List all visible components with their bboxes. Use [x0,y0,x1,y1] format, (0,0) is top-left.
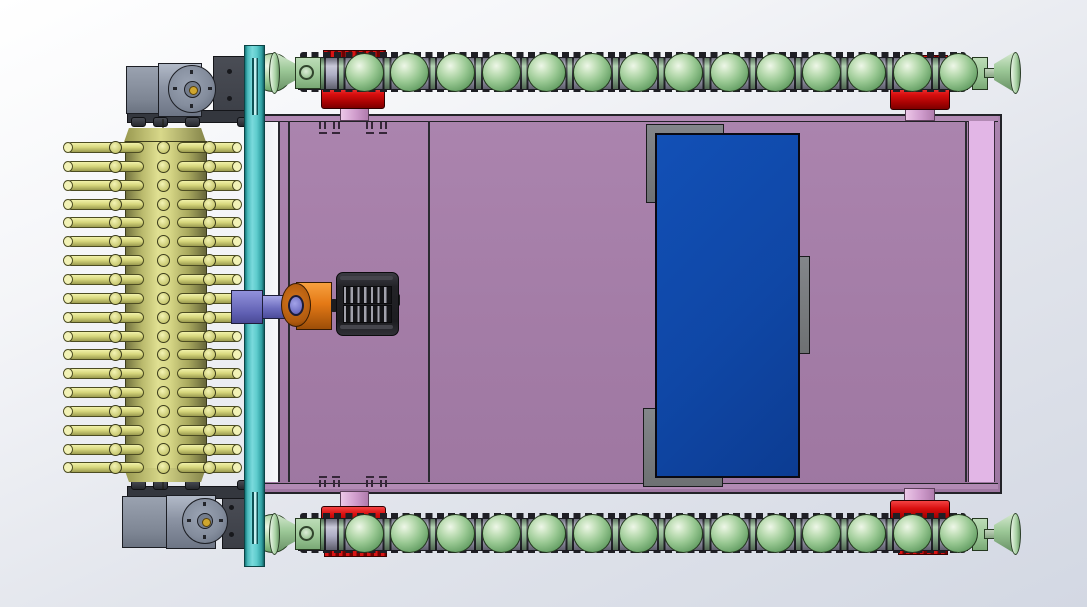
vent-tick [366,122,368,129]
brush-pin-cap-right [232,444,242,455]
brush-hub-dot [157,386,170,399]
track-ball [573,53,612,92]
vent-tick [324,480,326,487]
brush-hub-dot [157,461,170,474]
track-end-rim-bottom-left [269,513,280,555]
brush-pin-cap-left [63,331,73,342]
track-ball [436,514,475,553]
brush-pin-left [66,406,144,417]
brush-pin-cap-right [232,255,242,266]
equipment-panel-blue[interactable] [655,133,800,478]
vent-tick [333,122,335,129]
track-ball [664,53,703,92]
brush-hub-dot [157,160,170,173]
brush-pin-row [64,444,244,457]
brush-pin-row [64,255,244,268]
brush-pin-cap-right [232,180,242,191]
brush-motor-fin-row-1 [343,286,392,304]
vent-tick [366,480,368,487]
brush-pin-row [64,406,244,419]
vent-dash [332,476,340,479]
chassis-right-light-strip [968,121,995,482]
motor-face-notch [203,535,206,539]
brush-pin-joint [109,311,122,324]
brush-pin-left [66,255,144,266]
vent-dash [332,132,340,135]
track-ball [893,514,932,553]
brush-hub-dot [157,292,170,305]
brush-pin-joint [109,292,122,305]
vent-tick [380,122,382,129]
brush-pin-left [66,444,144,455]
brush-hub-dot [157,348,170,361]
brush-pin-left [66,387,144,398]
track-ball [847,53,886,92]
brush-pin-row [64,274,244,287]
brush-pin-cap-left [63,199,73,210]
track-ball [939,514,978,553]
track-ball [756,514,795,553]
brush-pin-left [66,312,144,323]
brush-pin-joint [203,273,216,286]
brush-pin-joint [203,292,216,305]
track-ball [436,53,475,92]
brush-motor-top-band [340,276,393,280]
vent-tick [371,480,373,487]
brush-pin-cap-right [232,199,242,210]
track-ball [527,514,566,553]
vent-dash [379,476,387,479]
vent-tick [371,122,373,129]
brush-pin-joint [109,179,122,192]
brush-pin-joint [203,254,216,267]
brush-pin-joint [203,424,216,437]
cad-viewport[interactable] [0,0,1087,607]
brush-pin-joint [203,160,216,173]
brush-pin-row [64,199,244,212]
coupling-bore [288,295,304,316]
brush-pin-cap-left [63,180,73,191]
brush-motor-bottom-band [340,325,393,329]
brush-pin-joint [203,330,216,343]
track-ball [527,53,566,92]
brush-pin-joint [109,424,122,437]
vent-dash [379,132,387,135]
brush-pin-left [66,142,144,153]
brush-pin-row [64,142,244,155]
brush-pin-left [66,462,144,473]
brush-pin-cap-right [232,142,242,153]
brush-pin-row [64,425,244,438]
brush-pin-joint [109,198,122,211]
track-ball [390,53,429,92]
track-ball [390,514,429,553]
brush-pin-cap-left [63,425,73,436]
bracket-hole [229,505,234,510]
track-ball [710,514,749,553]
brush-hub-dot [157,254,170,267]
chassis-divider-line-3 [965,121,967,482]
vent-tick [385,122,387,129]
brush-pin-row [64,387,244,400]
motor-face-notch [190,70,193,74]
track-ball [619,514,658,553]
chassis-divider-line-2 [428,121,430,482]
vent-tick [338,122,340,129]
mount-bolt [153,117,168,127]
brush-hub-dot [157,179,170,192]
brush-pin-cap-right [232,161,242,172]
brush-pin-cap-left [63,293,73,304]
track-ball [710,53,749,92]
brush-pin-cap-right [232,368,242,379]
brush-pin-row [64,312,244,325]
vent-dash [366,476,374,479]
brush-pin-cap-right [232,406,242,417]
vent-tick [319,480,321,487]
bracket-hole [227,96,232,101]
track-ball [756,53,795,92]
gearbox-bl [122,496,170,548]
brush-pin-joint [109,330,122,343]
brush-hub-dot [157,424,170,437]
motor-face-notch [219,519,223,522]
brush-pin-cap-right [232,425,242,436]
brush-pin-cap-left [63,142,73,153]
track-ball [802,53,841,92]
brush-hub-dot [157,141,170,154]
track-end-rim-top-left [269,52,280,94]
brush-pin-row [64,180,244,193]
track-ball [345,514,384,553]
track-ball [847,514,886,553]
brush-pin-row [64,217,244,230]
vent-dash [366,132,374,135]
mount-bolt [131,117,146,127]
vent-tick [385,480,387,487]
vent-tick [333,480,335,487]
brush-pin-cap-right [232,387,242,398]
brush-pin-row [64,331,244,344]
track-ball [664,514,703,553]
track-ball [345,53,384,92]
brush-pin-joint [203,405,216,418]
brush-hub-dot [157,311,170,324]
brush-pin-left [66,199,144,210]
brush-pin-joint [203,311,216,324]
brush-hub-dot [157,405,170,418]
bracket-hole [227,69,232,74]
brush-pin-row [64,368,244,381]
brush-pin-joint [203,141,216,154]
brush-hub-dot [157,330,170,343]
brush-hub-dot [157,367,170,380]
brush-pin-cap-right [232,274,242,285]
motor-face-notch [190,104,193,108]
brush-pin-cap-right [232,217,242,228]
brush-pin-joint [109,405,122,418]
brush-pin-cap-left [63,161,73,172]
brush-pin-left [66,274,144,285]
brush-motor-fin-row-2 [343,305,392,323]
brush-hub-dot [157,235,170,248]
brush-pin-row [64,293,244,306]
vent-tick [324,122,326,129]
track-ball [802,514,841,553]
brush-pin-joint [203,386,216,399]
brush-pin-cap-right [232,331,242,342]
brush-pin-left [66,425,144,436]
vent-tick [319,122,321,129]
brush-pin-cap-left [63,387,73,398]
brush-pin-joint [109,386,122,399]
brush-pin-joint [109,141,122,154]
brush-pin-cap-left [63,312,73,323]
brush-pin-cap-left [63,406,73,417]
brush-pin-joint [109,273,122,286]
bracket-hole [229,532,234,537]
brush-pin-left [66,368,144,379]
motor-hub-dot-tl [189,86,198,95]
brush-pin-left [66,349,144,360]
track-end-rim-top-right [1010,52,1021,94]
brush-pin-row [64,236,244,249]
brush-pin-joint [109,160,122,173]
track-ball [893,53,932,92]
mount-bolt [185,117,200,127]
brush-pin-cap-right [232,349,242,360]
track-end-rim-bottom-right [1010,513,1021,555]
side-plate-slot-top [252,58,259,115]
motor-face-notch [203,502,206,506]
side-plate-slot-bottom [252,492,259,544]
motor-face-notch [208,87,212,90]
track-ball [939,53,978,92]
brush-pin-cap-left [63,444,73,455]
brush-pin-cap-left [63,274,73,285]
brush-hub-dot [157,273,170,286]
track-ball [619,53,658,92]
brush-pin-left [66,293,144,304]
brush-pin-joint [109,254,122,267]
brush-pin-row [64,462,244,475]
vent-dash [319,132,327,135]
brush-pin-left [66,161,144,172]
brush-pin-row [64,349,244,362]
brush-hub-dot [157,198,170,211]
vent-tick [380,480,382,487]
brush-pin-joint [203,443,216,456]
track-ball [482,514,521,553]
track-ball [573,514,612,553]
vent-dash [319,476,327,479]
brush-pin-left [66,217,144,228]
motor-face-notch [187,519,191,522]
shaft-collar [231,290,263,324]
brush-pin-joint [203,198,216,211]
brush-pin-row [64,161,244,174]
brush-pin-left [66,180,144,191]
brush-pin-joint [109,443,122,456]
motor-hub-dot-bl [202,518,211,527]
brush-hub-dot [157,443,170,456]
brush-pin-left [66,331,144,342]
track-ball [482,53,521,92]
vent-tick [338,480,340,487]
brush-hub-dot [157,216,170,229]
brush-pin-cap-right [232,236,242,247]
brush-pin-joint [203,179,216,192]
track-end-hub-top-left [299,65,314,80]
brush-pin-cap-right [232,462,242,473]
brush-pin-left [66,236,144,247]
motor-face-notch [173,87,177,90]
track-end-hub-bottom-left [299,526,314,541]
brush-flange-top [124,128,206,142]
